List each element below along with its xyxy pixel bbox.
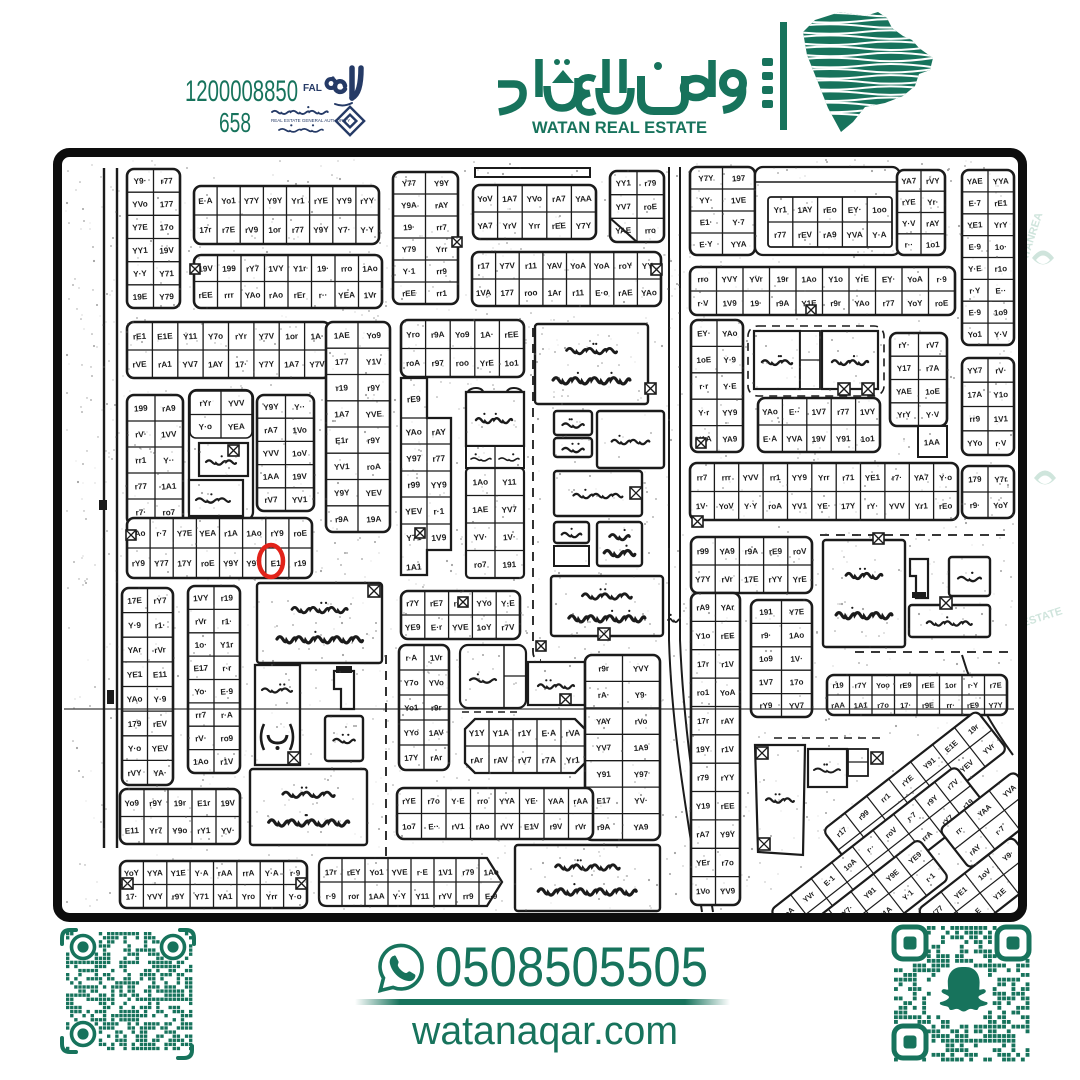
- svg-text:rAY: rAY: [431, 426, 446, 437]
- svg-text:1Ao: 1Ao: [362, 264, 378, 274]
- svg-text:1AY: 1AY: [208, 360, 224, 370]
- svg-text:rY9: rY9: [132, 559, 146, 569]
- svg-text:r99: r99: [696, 547, 709, 557]
- svg-text:Y··: Y··: [163, 456, 175, 466]
- svg-text:YY1: YY1: [615, 178, 631, 188]
- svg-text:Y9·: Y9·: [133, 176, 146, 186]
- svg-text:r·A: r·A: [221, 710, 234, 720]
- svg-text:1V·: 1V·: [696, 501, 709, 511]
- svg-text:Y71: Y71: [159, 269, 175, 279]
- svg-text:r9r: r9r: [598, 664, 609, 674]
- svg-text:r1V: r1V: [721, 659, 735, 669]
- svg-text:YE·: YE·: [525, 796, 539, 806]
- svg-text:r7A: r7A: [926, 363, 940, 373]
- svg-text:rEV: rEV: [153, 719, 168, 729]
- svg-text:1VE: 1VE: [731, 195, 747, 205]
- svg-text:r9r: r9r: [830, 299, 841, 309]
- svg-text:Y7Y: Y7Y: [258, 360, 275, 370]
- svg-text:rAV: rAV: [493, 754, 508, 765]
- svg-text:rAr: rAr: [430, 753, 443, 763]
- svg-text:1o9: 1o9: [759, 654, 774, 664]
- svg-text:E17: E17: [596, 796, 611, 806]
- svg-text:1or: 1or: [268, 225, 282, 235]
- svg-text:YAo: YAo: [127, 694, 143, 704]
- svg-text:r71: r71: [842, 473, 855, 483]
- svg-text:YEV: YEV: [152, 744, 170, 754]
- svg-text:Y19: Y19: [696, 801, 711, 811]
- svg-text:rEV: rEV: [798, 230, 813, 240]
- svg-text:r1o: r1o: [994, 264, 1007, 274]
- svg-text:YoA: YoA: [570, 261, 586, 271]
- svg-text:r11: r11: [525, 261, 538, 271]
- svg-text:r9r: r9r: [431, 703, 442, 713]
- svg-text:r19: r19: [832, 681, 844, 691]
- svg-text:r99: r99: [407, 479, 421, 490]
- svg-text:Yo9: Yo9: [366, 331, 381, 341]
- svg-text:19Y: 19Y: [696, 744, 711, 754]
- svg-text:WATAN REAL ESTATE: WATAN REAL ESTATE: [532, 118, 707, 137]
- svg-text:Y9Y: Y9Y: [263, 402, 280, 412]
- svg-text:Yrr: Yrr: [818, 473, 830, 483]
- svg-text:rEE: rEE: [921, 680, 935, 690]
- svg-text:E17: E17: [193, 663, 209, 673]
- svg-text:Y7Y: Y7Y: [575, 221, 592, 231]
- svg-text:YV7: YV7: [501, 505, 518, 515]
- svg-text:YVV: YVV: [228, 398, 246, 408]
- svg-text:Y7r: Y7r: [994, 475, 1008, 485]
- svg-text:r7o: r7o: [721, 858, 734, 868]
- svg-text:Y97: Y97: [406, 453, 422, 464]
- svg-text:r77: r77: [160, 176, 173, 186]
- svg-text:r97: r97: [431, 358, 444, 368]
- svg-text:rAA: rAA: [573, 796, 588, 806]
- svg-text:rA7: rA7: [696, 830, 710, 840]
- svg-text:Yo1: Yo1: [967, 330, 982, 340]
- svg-text:17Y: 17Y: [177, 559, 193, 569]
- svg-text:Y9Y: Y9Y: [313, 225, 330, 235]
- svg-text:roV: roV: [793, 547, 808, 557]
- svg-text:Yro: Yro: [406, 330, 420, 340]
- svg-text:Y77: Y77: [402, 178, 417, 188]
- svg-text:r7E: r7E: [222, 225, 236, 235]
- svg-text:rAA: rAA: [217, 868, 232, 878]
- svg-text:19E: 19E: [132, 292, 148, 302]
- svg-text:YAA: YAA: [548, 796, 565, 806]
- svg-text:1Ao: 1Ao: [789, 631, 805, 641]
- svg-text:19V: 19V: [811, 434, 827, 444]
- svg-text:Y79: Y79: [159, 292, 175, 302]
- svg-text:r77: r77: [432, 453, 446, 464]
- svg-text:YoA: YoA: [907, 274, 923, 284]
- svg-text:r9A: r9A: [431, 330, 445, 340]
- svg-text:rA7: rA7: [264, 425, 279, 435]
- svg-text:YA9: YA9: [722, 434, 738, 444]
- svg-text:Y9Y: Y9Y: [720, 830, 736, 840]
- svg-text:Y·Y: Y·Y: [360, 225, 375, 235]
- svg-text:YV·: YV·: [473, 532, 487, 542]
- svg-text:rAY: rAY: [926, 219, 941, 229]
- svg-text:r··: r··: [318, 291, 327, 301]
- svg-text:rYV: rYV: [438, 891, 453, 901]
- svg-text:rEr: rEr: [293, 290, 306, 300]
- svg-text:rAY: rAY: [721, 716, 736, 726]
- svg-text:Y77: Y77: [154, 559, 170, 569]
- svg-text:rr7: rr7: [696, 473, 708, 483]
- svg-text:r·Y: r·Y: [968, 681, 979, 691]
- svg-text:Y··: Y··: [294, 402, 306, 412]
- svg-text:Y·1: Y·1: [403, 267, 417, 277]
- svg-text:r··: r··: [904, 240, 913, 250]
- svg-text:E·o: E·o: [595, 288, 609, 298]
- svg-text:roo: roo: [455, 358, 469, 368]
- svg-text:Y·o: Y·o: [128, 744, 142, 754]
- svg-text:r77: r77: [882, 299, 895, 309]
- svg-text:rV7: rV7: [264, 495, 278, 505]
- svg-text:YEV: YEV: [405, 506, 423, 517]
- svg-text:rVr: rVr: [575, 822, 587, 832]
- svg-text:rV9: rV9: [245, 225, 259, 235]
- svg-text:r9A: r9A: [335, 515, 349, 525]
- svg-text:rY·: rY·: [867, 501, 879, 511]
- svg-text:r9·: r9·: [969, 501, 980, 511]
- svg-text:rrr: rrr: [224, 291, 235, 301]
- svg-text:YVE: YVE: [452, 623, 470, 633]
- svg-text:YV7: YV7: [182, 360, 199, 370]
- svg-text:YAo: YAo: [722, 329, 738, 339]
- svg-text:17·: 17·: [125, 892, 137, 902]
- svg-text:1o7: 1o7: [402, 822, 417, 832]
- svg-text:Y1r: Y1r: [293, 264, 308, 274]
- svg-text:rr1: rr1: [135, 456, 147, 466]
- svg-text:YrE: YrE: [480, 358, 495, 368]
- svg-text:rEE: rEE: [720, 801, 735, 811]
- svg-text:1Ao: 1Ao: [246, 529, 262, 539]
- svg-text:r·9: r·9: [936, 275, 947, 285]
- svg-text:Y7V: Y7V: [258, 332, 275, 342]
- svg-text:Y7V: Y7V: [499, 261, 516, 271]
- svg-text:658: 658: [219, 107, 251, 138]
- svg-text:rY9: rY9: [270, 529, 284, 539]
- svg-text:YY1: YY1: [132, 246, 149, 256]
- svg-text:191: 191: [502, 560, 517, 570]
- svg-text:ro7: ro7: [162, 508, 176, 518]
- svg-text:r9V: r9V: [549, 822, 563, 832]
- svg-text:Y7Y: Y7Y: [695, 575, 712, 585]
- svg-text:1Vr: 1Vr: [430, 653, 443, 663]
- svg-text:rVY: rVY: [500, 822, 515, 832]
- svg-text:17o: 17o: [159, 223, 174, 233]
- svg-text:YV1: YV1: [334, 462, 351, 472]
- svg-text:YAo: YAo: [641, 288, 657, 298]
- svg-text:roo: roo: [524, 288, 538, 298]
- svg-text:r19: r19: [335, 383, 348, 393]
- svg-text:r7Y: r7Y: [406, 599, 420, 609]
- svg-text:rr7: rr7: [195, 710, 207, 720]
- svg-text:r9Y: r9Y: [149, 798, 163, 808]
- svg-text:Y·Y: Y·Y: [133, 269, 148, 279]
- svg-text:Y·Y: Y·Y: [393, 892, 408, 902]
- svg-text:Y1Y: Y1Y: [468, 727, 485, 738]
- svg-text:rV1: rV1: [451, 822, 465, 832]
- svg-text:YrE: YrE: [792, 575, 807, 585]
- svg-text:rr7: rr7: [436, 223, 448, 233]
- svg-text:rE1: rE1: [133, 332, 147, 342]
- svg-text:r1V: r1V: [220, 757, 234, 767]
- svg-text:YAo: YAo: [854, 298, 870, 308]
- svg-text:rVA: rVA: [565, 728, 580, 739]
- svg-text:Yr·: Yr·: [927, 198, 939, 208]
- svg-text:E·9: E·9: [220, 687, 234, 697]
- svg-text:YAr: YAr: [721, 603, 735, 613]
- svg-text:YAo: YAo: [245, 290, 261, 300]
- svg-text:r7E: r7E: [989, 680, 1002, 690]
- svg-text:1Vr: 1Vr: [363, 290, 377, 300]
- svg-text:YA7: YA7: [901, 176, 917, 186]
- svg-text:19r: 19r: [173, 798, 187, 808]
- svg-text:rr9: rr9: [436, 267, 448, 277]
- svg-text:0508505505: 0508505505: [435, 935, 708, 998]
- svg-text:1AA: 1AA: [263, 472, 280, 482]
- svg-text:rYY: rYY: [360, 196, 375, 206]
- svg-text:Yo9: Yo9: [455, 330, 470, 340]
- svg-text:17r: 17r: [199, 225, 213, 235]
- svg-text:17o: 17o: [789, 677, 803, 687]
- svg-text:1o1: 1o1: [860, 434, 875, 444]
- svg-text:YV1: YV1: [292, 495, 309, 505]
- svg-text:Y·E: Y·E: [501, 599, 516, 609]
- svg-text:1o·: 1o·: [995, 242, 1008, 252]
- svg-text:1AA: 1AA: [368, 891, 385, 901]
- svg-text:E·Y: E·Y: [699, 240, 714, 250]
- svg-text:Y97: Y97: [634, 769, 649, 779]
- svg-text:YEr: YEr: [696, 858, 710, 868]
- svg-text:r1·: r1·: [221, 617, 232, 627]
- svg-text:1A9: 1A9: [633, 743, 649, 753]
- svg-text:Y·9: Y·9: [128, 621, 142, 631]
- svg-text:r7o: r7o: [427, 796, 440, 806]
- svg-text:Y·A: Y·A: [194, 868, 209, 878]
- svg-text:watanaqar.com: watanaqar.com: [411, 1009, 678, 1053]
- svg-text:r·r: r·r: [699, 382, 708, 392]
- svg-text:YE9: YE9: [405, 623, 422, 633]
- svg-text:r9Y: r9Y: [367, 436, 381, 446]
- svg-text:YE1: YE1: [967, 220, 983, 230]
- svg-text:Y9Y: Y9Y: [223, 559, 240, 569]
- svg-text:ror: ror: [348, 892, 360, 902]
- svg-text:Yo1: Yo1: [221, 196, 236, 206]
- svg-text:YVV: YVV: [742, 473, 759, 483]
- svg-text:E1·: E1·: [700, 218, 713, 228]
- svg-text:roA: roA: [366, 462, 381, 472]
- svg-text:1V·: 1V·: [503, 532, 516, 542]
- svg-text:YVE: YVE: [365, 409, 383, 419]
- svg-text:r·r: r·r: [222, 664, 233, 674]
- svg-text:1oY: 1oY: [476, 623, 492, 633]
- svg-text:YYA: YYA: [147, 868, 164, 878]
- svg-text:1oE: 1oE: [696, 355, 712, 365]
- svg-text:YVY: YVY: [147, 892, 164, 902]
- svg-text:17Y: 17Y: [404, 753, 419, 763]
- svg-text:1Vo: 1Vo: [696, 886, 711, 896]
- svg-text:EY·: EY·: [697, 329, 711, 339]
- svg-text:r·9: r·9: [325, 892, 336, 902]
- svg-text:rro: rro: [341, 264, 353, 274]
- svg-text:YVA: YVA: [846, 230, 863, 240]
- svg-text:E·9: E·9: [968, 308, 982, 318]
- svg-text:YVo: YVo: [429, 678, 445, 688]
- svg-text:r19: r19: [294, 559, 307, 569]
- svg-text:rA1: rA1: [158, 360, 173, 370]
- svg-text:19·: 19·: [750, 299, 762, 309]
- svg-text:177: 177: [159, 199, 174, 209]
- svg-text:r9Y: r9Y: [367, 383, 381, 393]
- svg-text:Y9·: Y9·: [635, 690, 648, 700]
- svg-text:1o9: 1o9: [994, 308, 1009, 318]
- svg-text:1A1: 1A1: [161, 482, 177, 492]
- svg-text:YVo: YVo: [526, 194, 542, 204]
- svg-text:rYE: rYE: [402, 796, 417, 806]
- svg-text:YEA: YEA: [338, 290, 356, 300]
- svg-text:YY7: YY7: [967, 366, 983, 376]
- svg-text:Y11: Y11: [415, 891, 430, 901]
- svg-text:Yoo: Yoo: [876, 680, 891, 690]
- svg-text:rVr: rVr: [195, 617, 208, 627]
- svg-text:1A7: 1A7: [284, 360, 300, 370]
- svg-text:Y·o: Y·o: [288, 892, 302, 902]
- svg-text:rEo: rEo: [939, 501, 953, 511]
- svg-text:1AE: 1AE: [472, 505, 489, 515]
- svg-text:r9·: r9·: [761, 631, 772, 641]
- svg-text:rY7: rY7: [246, 264, 260, 274]
- svg-text:17A: 17A: [967, 390, 982, 400]
- svg-text:YYA: YYA: [993, 176, 1010, 186]
- svg-text:E·r: E·r: [431, 623, 444, 633]
- svg-text:Y7Y: Y7Y: [244, 196, 261, 206]
- svg-text:Y7E: Y7E: [177, 529, 194, 539]
- svg-text:rAr: rAr: [470, 755, 484, 766]
- svg-text:Y·o: Y·o: [198, 422, 212, 432]
- svg-text:YA·: YA·: [153, 768, 167, 778]
- svg-text:YAo: YAo: [405, 426, 422, 437]
- svg-text:ro9: ro9: [220, 734, 234, 744]
- svg-text:YAE: YAE: [967, 176, 984, 186]
- svg-text:r·V: r·V: [697, 299, 709, 309]
- svg-text:rVY: rVY: [926, 176, 941, 186]
- svg-text:Y9Y: Y9Y: [334, 488, 351, 498]
- svg-text:rE9: rE9: [899, 680, 912, 690]
- svg-text:YrY: YrY: [994, 220, 1009, 230]
- svg-text:Y·o: Y·o: [939, 473, 953, 483]
- svg-text:r·E: r·E: [417, 868, 429, 878]
- svg-text:r77: r77: [291, 225, 304, 235]
- svg-text:FAL: FAL: [303, 83, 322, 94]
- svg-text:r·9: r·9: [290, 868, 301, 878]
- svg-text:YAY: YAY: [596, 717, 612, 727]
- svg-text:YY9: YY9: [792, 473, 808, 483]
- svg-text:Y7o: Y7o: [208, 332, 224, 342]
- svg-text:E·A: E·A: [541, 728, 556, 739]
- svg-text:17r: 17r: [325, 868, 338, 878]
- svg-text:E11: E11: [124, 826, 139, 836]
- svg-text:rA·: rA·: [598, 690, 610, 700]
- svg-text:Yr1: Yr1: [566, 755, 581, 766]
- svg-text:roE: roE: [201, 559, 216, 569]
- svg-text:177: 177: [500, 288, 515, 298]
- svg-text:r17: r17: [477, 261, 490, 271]
- svg-text:roE: roE: [935, 299, 950, 309]
- svg-text:177: 177: [335, 357, 350, 367]
- svg-text:r7Y: r7Y: [854, 680, 867, 690]
- svg-text:1oo: 1oo: [872, 205, 887, 215]
- svg-text:Y·9: Y·9: [153, 694, 167, 704]
- svg-text:YY9: YY9: [336, 196, 353, 206]
- svg-text:YoY: YoY: [993, 500, 1009, 510]
- svg-text:1VY: 1VY: [860, 407, 877, 417]
- svg-text:Y7Y: Y7Y: [698, 173, 714, 183]
- svg-text:YEA: YEA: [199, 529, 217, 539]
- svg-text:r77: r77: [134, 482, 147, 492]
- svg-text:rA9: rA9: [162, 404, 177, 414]
- svg-text:YVo: YVo: [132, 199, 148, 209]
- svg-text:YV·: YV·: [221, 826, 235, 836]
- svg-text:r9A: r9A: [597, 822, 611, 832]
- svg-text:YAr: YAr: [127, 645, 142, 655]
- svg-text:YE1: YE1: [127, 670, 144, 680]
- svg-text:YA9: YA9: [633, 822, 649, 832]
- svg-text:YE1: YE1: [865, 473, 881, 483]
- svg-text:1Ao: 1Ao: [472, 477, 488, 487]
- svg-text:Y9Y: Y9Y: [267, 196, 284, 206]
- svg-text:rEE: rEE: [402, 288, 417, 298]
- svg-text:Yr7: Yr7: [149, 826, 163, 836]
- svg-text:1V·: 1V·: [790, 654, 803, 664]
- svg-text:1Ao: 1Ao: [483, 867, 499, 877]
- svg-text:r79: r79: [644, 178, 657, 188]
- svg-text:Yrr: Yrr: [266, 892, 278, 902]
- svg-text:1V1: 1V1: [993, 414, 1008, 424]
- svg-text:Y9A: Y9A: [401, 200, 417, 210]
- svg-text:Y11: Y11: [183, 332, 198, 342]
- svg-text:Y·9: Y·9: [723, 355, 737, 365]
- svg-text:Y17: Y17: [897, 363, 912, 373]
- svg-text:roA: roA: [406, 358, 421, 368]
- svg-text:17r: 17r: [697, 716, 710, 726]
- svg-text:1AE: 1AE: [334, 331, 351, 341]
- svg-text:rY7: rY7: [153, 596, 167, 606]
- svg-text:r1A: r1A: [224, 529, 238, 539]
- svg-text:rA7: rA7: [552, 194, 567, 204]
- svg-text:E1r: E1r: [197, 798, 212, 808]
- svg-text:YA7: YA7: [477, 221, 493, 231]
- svg-text:YoY: YoY: [907, 298, 923, 308]
- svg-text:REAL ESTATE GENERAL AUTHORITY: REAL ESTATE GENERAL AUTHORITY: [271, 118, 350, 123]
- svg-text:rVE: rVE: [132, 360, 147, 370]
- svg-text:Y·V: Y·V: [926, 410, 941, 420]
- svg-text:rE1: rE1: [994, 198, 1008, 208]
- svg-text:1VY: 1VY: [193, 593, 210, 603]
- svg-text:rVr: rVr: [154, 645, 167, 655]
- svg-text:ro7: ro7: [474, 560, 488, 570]
- svg-text:Yo1: Yo1: [369, 867, 384, 877]
- svg-text:1V7: 1V7: [811, 407, 827, 417]
- svg-text:Yr1: Yr1: [291, 196, 305, 206]
- svg-text:YV7: YV7: [596, 743, 612, 753]
- svg-text:17·: 17·: [235, 360, 247, 370]
- svg-text:1200008850: 1200008850: [185, 75, 298, 108]
- svg-text:r·7: r·7: [156, 529, 168, 539]
- svg-text:YVA: YVA: [786, 434, 803, 444]
- svg-text:Y·V: Y·V: [902, 219, 917, 229]
